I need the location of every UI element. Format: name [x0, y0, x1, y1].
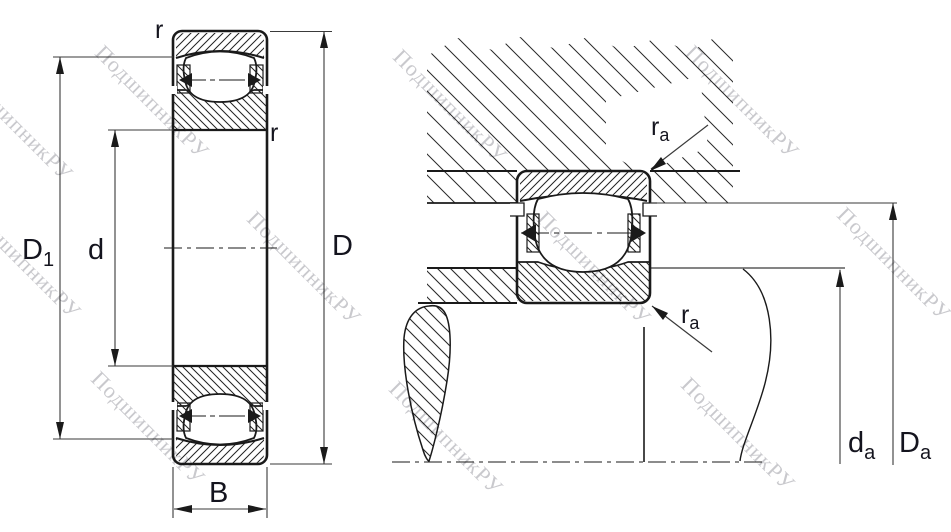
shaft-break-curve: [740, 269, 771, 461]
label-D: D: [332, 230, 353, 262]
dimension-Da: [650, 203, 897, 465]
label-r-top: r: [155, 16, 163, 44]
shaft-teardrop-break: [404, 306, 450, 461]
left-view-bearing-section: [164, 31, 277, 464]
mounted-bearing-section: [510, 171, 657, 303]
shaft-shoulder-hatch: [427, 268, 517, 303]
label-d: d: [88, 234, 104, 266]
label-da: da: [848, 427, 876, 464]
right-view-mounting: [392, 36, 897, 465]
bearing-drawing: r r D1 d D B ra ra da Da ПодшипникРУ Под…: [0, 0, 951, 532]
barrel-roller-top: [184, 52, 257, 103]
dimension-D1: [53, 57, 173, 439]
label-Da: Da: [899, 427, 932, 464]
label-D1: D1: [22, 234, 54, 271]
label-ra-bottom: ra: [681, 301, 700, 333]
dimension-D: [270, 32, 332, 465]
drawing-canvas: r r D1 d D B ra ra da Da: [0, 0, 951, 532]
label-B: B: [209, 477, 228, 509]
dimension-da: [836, 269, 844, 464]
dimension-d: [108, 130, 173, 366]
barrel-roller-bottom: [184, 394, 257, 445]
label-r-side: r: [270, 119, 278, 147]
